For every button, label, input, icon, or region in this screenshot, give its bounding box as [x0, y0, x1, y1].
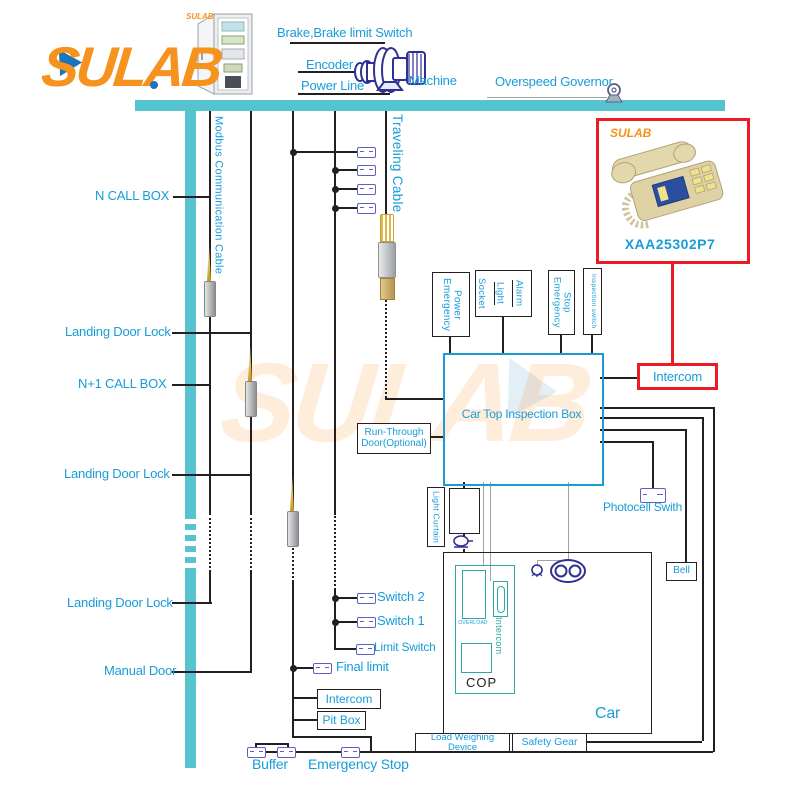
terminal-connector-icon — [357, 203, 376, 214]
junction-dot — [332, 595, 339, 602]
socket-light-alarm-box: Socket Light Alarm — [475, 270, 532, 317]
wire — [713, 407, 715, 752]
bell-box: Bell — [666, 562, 697, 581]
landing-door-lock-label-2: Landing Door Lock — [64, 467, 170, 481]
terminal-connector-icon — [357, 147, 376, 158]
cop-display — [462, 570, 486, 619]
intercom-label: Intercom — [653, 370, 702, 384]
terminal-connector-icon — [357, 593, 376, 604]
pit-emergency-stop-label: Emergency Stop — [308, 757, 409, 772]
cop-keypad — [461, 643, 492, 673]
wire — [600, 377, 637, 379]
emergency-stop-label: Emergency Stop — [552, 277, 572, 328]
socket-label: Socket — [476, 278, 494, 309]
manual-door-label: Manual Door — [104, 664, 176, 678]
safety-gear-label: Safety Gear — [521, 737, 577, 748]
pit-intercom-label: Intercom — [326, 693, 373, 706]
junction-dot — [332, 619, 339, 626]
wire — [600, 417, 702, 419]
wire — [292, 151, 358, 153]
terminal-connector-icon — [356, 644, 375, 655]
photocell-switch-label: Photocell Swith — [603, 501, 682, 514]
encoder-label: Encoder — [306, 58, 353, 72]
light-curtain-sensor-icon — [451, 534, 475, 550]
wire — [292, 736, 370, 738]
brake-label: Brake,Brake limit Switch — [277, 26, 412, 40]
final-limit-label: Final limit — [336, 660, 389, 674]
junction-dot — [332, 167, 339, 174]
wire — [685, 429, 687, 562]
traveling-cable-wire — [385, 295, 387, 398]
emergency-power-label: Emergency Power — [441, 278, 462, 331]
cable-splice-icon — [245, 347, 257, 417]
wire — [172, 602, 212, 604]
product-model-text: XAA25302P7 — [596, 236, 744, 252]
wire — [585, 741, 702, 743]
pit-box-label: Pit Box — [322, 714, 360, 727]
wire — [385, 398, 443, 400]
light-label: Light — [494, 282, 513, 304]
wire — [250, 572, 252, 672]
wire — [600, 441, 652, 443]
wire — [292, 111, 294, 540]
logo-registered-dot — [150, 81, 158, 89]
run-through-door-label: Run-Through Door(Optional) — [359, 428, 429, 449]
emergency-stop-box: Emergency Stop — [548, 270, 575, 335]
wire — [292, 719, 317, 721]
overload-label: OVERLOAD — [456, 620, 490, 626]
wire — [172, 332, 250, 334]
load-weighing-device-label: Load Weighing Device — [416, 733, 509, 753]
terminal-connector-icon — [357, 184, 376, 195]
n-call-box-label: N CALL BOX — [95, 189, 169, 203]
traveling-cable-icon — [377, 214, 395, 300]
wire — [209, 513, 211, 572]
junction-dot — [290, 665, 297, 672]
wire — [255, 743, 287, 745]
wire — [250, 111, 252, 513]
run-through-door-box: Run-Through Door(Optional) — [357, 423, 431, 454]
wire — [370, 736, 372, 752]
light-curtain-box: Light Curtain — [427, 487, 445, 547]
wire — [652, 441, 654, 489]
shaft-rail-dashed — [185, 513, 196, 572]
intercom-box: Intercom — [637, 363, 718, 390]
wire — [250, 513, 252, 572]
wire — [600, 407, 713, 409]
wire — [702, 417, 704, 741]
landing-door-lock-label-3: Landing Door Lock — [67, 596, 173, 610]
n-plus-1-call-box-label: N+1 CALL BOX — [78, 377, 167, 391]
shaft-rail-upper — [185, 111, 196, 513]
wire — [449, 335, 451, 353]
switch-1-label: Switch 1 — [377, 614, 425, 628]
intercom-phone-image — [606, 134, 738, 234]
wire — [502, 315, 504, 353]
elevator-wiring-diagram: SULAB — [0, 0, 800, 800]
landing-door-lock-label-1: Landing Door Lock — [65, 325, 171, 339]
cop-intercom-unit — [493, 581, 508, 617]
buffer-label: Buffer — [252, 757, 288, 772]
alarm-label: Alarm — [512, 280, 531, 306]
bell-label: Bell — [673, 566, 690, 577]
car-label: Car — [595, 706, 620, 723]
emergency-power-box: Emergency Power — [432, 272, 470, 337]
limit-switch-label: Limit Switch — [374, 641, 436, 654]
traveling-cable-wire — [385, 111, 387, 215]
car-lamp-icon — [528, 563, 546, 579]
load-weighing-device-box: Load Weighing Device — [415, 733, 510, 752]
wire-red — [671, 258, 674, 363]
handset-icon — [497, 586, 505, 613]
terminal-connector-icon — [357, 617, 376, 628]
pit-intercom-box: Intercom — [317, 689, 381, 709]
wire — [292, 697, 317, 699]
brand-logo: SULAB — [39, 34, 224, 99]
traveling-cable-label: Traveling Cable — [390, 114, 404, 213]
terminal-connector-icon — [313, 663, 332, 674]
wire-gray — [568, 482, 569, 560]
terminal-connector-icon — [357, 165, 376, 176]
wire — [292, 582, 294, 737]
light-curtain-unit — [449, 488, 480, 534]
wire — [172, 384, 209, 386]
wire — [172, 671, 252, 673]
cabinet-brand-text: SULAB — [186, 12, 214, 21]
cop-label: COP — [466, 675, 497, 690]
cable-splice-icon — [287, 477, 299, 547]
governor-rope — [487, 97, 607, 98]
light-curtain-label: Light Curtain — [432, 491, 441, 543]
wire — [209, 572, 211, 603]
car-top-inspection-box-label: Car Top Inspection Box — [443, 408, 600, 421]
junction-dot — [332, 186, 339, 193]
junction-dot — [332, 205, 339, 212]
wire — [334, 648, 356, 650]
pit-box: Pit Box — [317, 711, 366, 730]
cop-intercom-label: Intercom — [494, 617, 504, 654]
switch-2-label: Switch 2 — [377, 590, 425, 604]
product-brand-text: SULAB — [610, 126, 651, 140]
car-fan-icon — [549, 558, 587, 584]
wire — [334, 513, 336, 590]
overspeed-governor-label: Overspeed Governor — [495, 75, 613, 89]
junction-dot — [290, 149, 297, 156]
inspection-switch-box: Inspection switch — [583, 268, 602, 335]
inspection-switch-label: Inspection switch — [589, 274, 596, 329]
wire — [600, 429, 685, 431]
power-line-label: Power Line — [301, 79, 364, 93]
wire — [560, 333, 562, 353]
wire — [172, 474, 250, 476]
safety-gear-box: Safety Gear — [512, 733, 587, 752]
machine-label: Machine — [409, 74, 457, 88]
wire — [591, 333, 593, 353]
modbus-cable-label: Modbus Communication Cable — [212, 116, 224, 274]
wire — [173, 196, 209, 198]
